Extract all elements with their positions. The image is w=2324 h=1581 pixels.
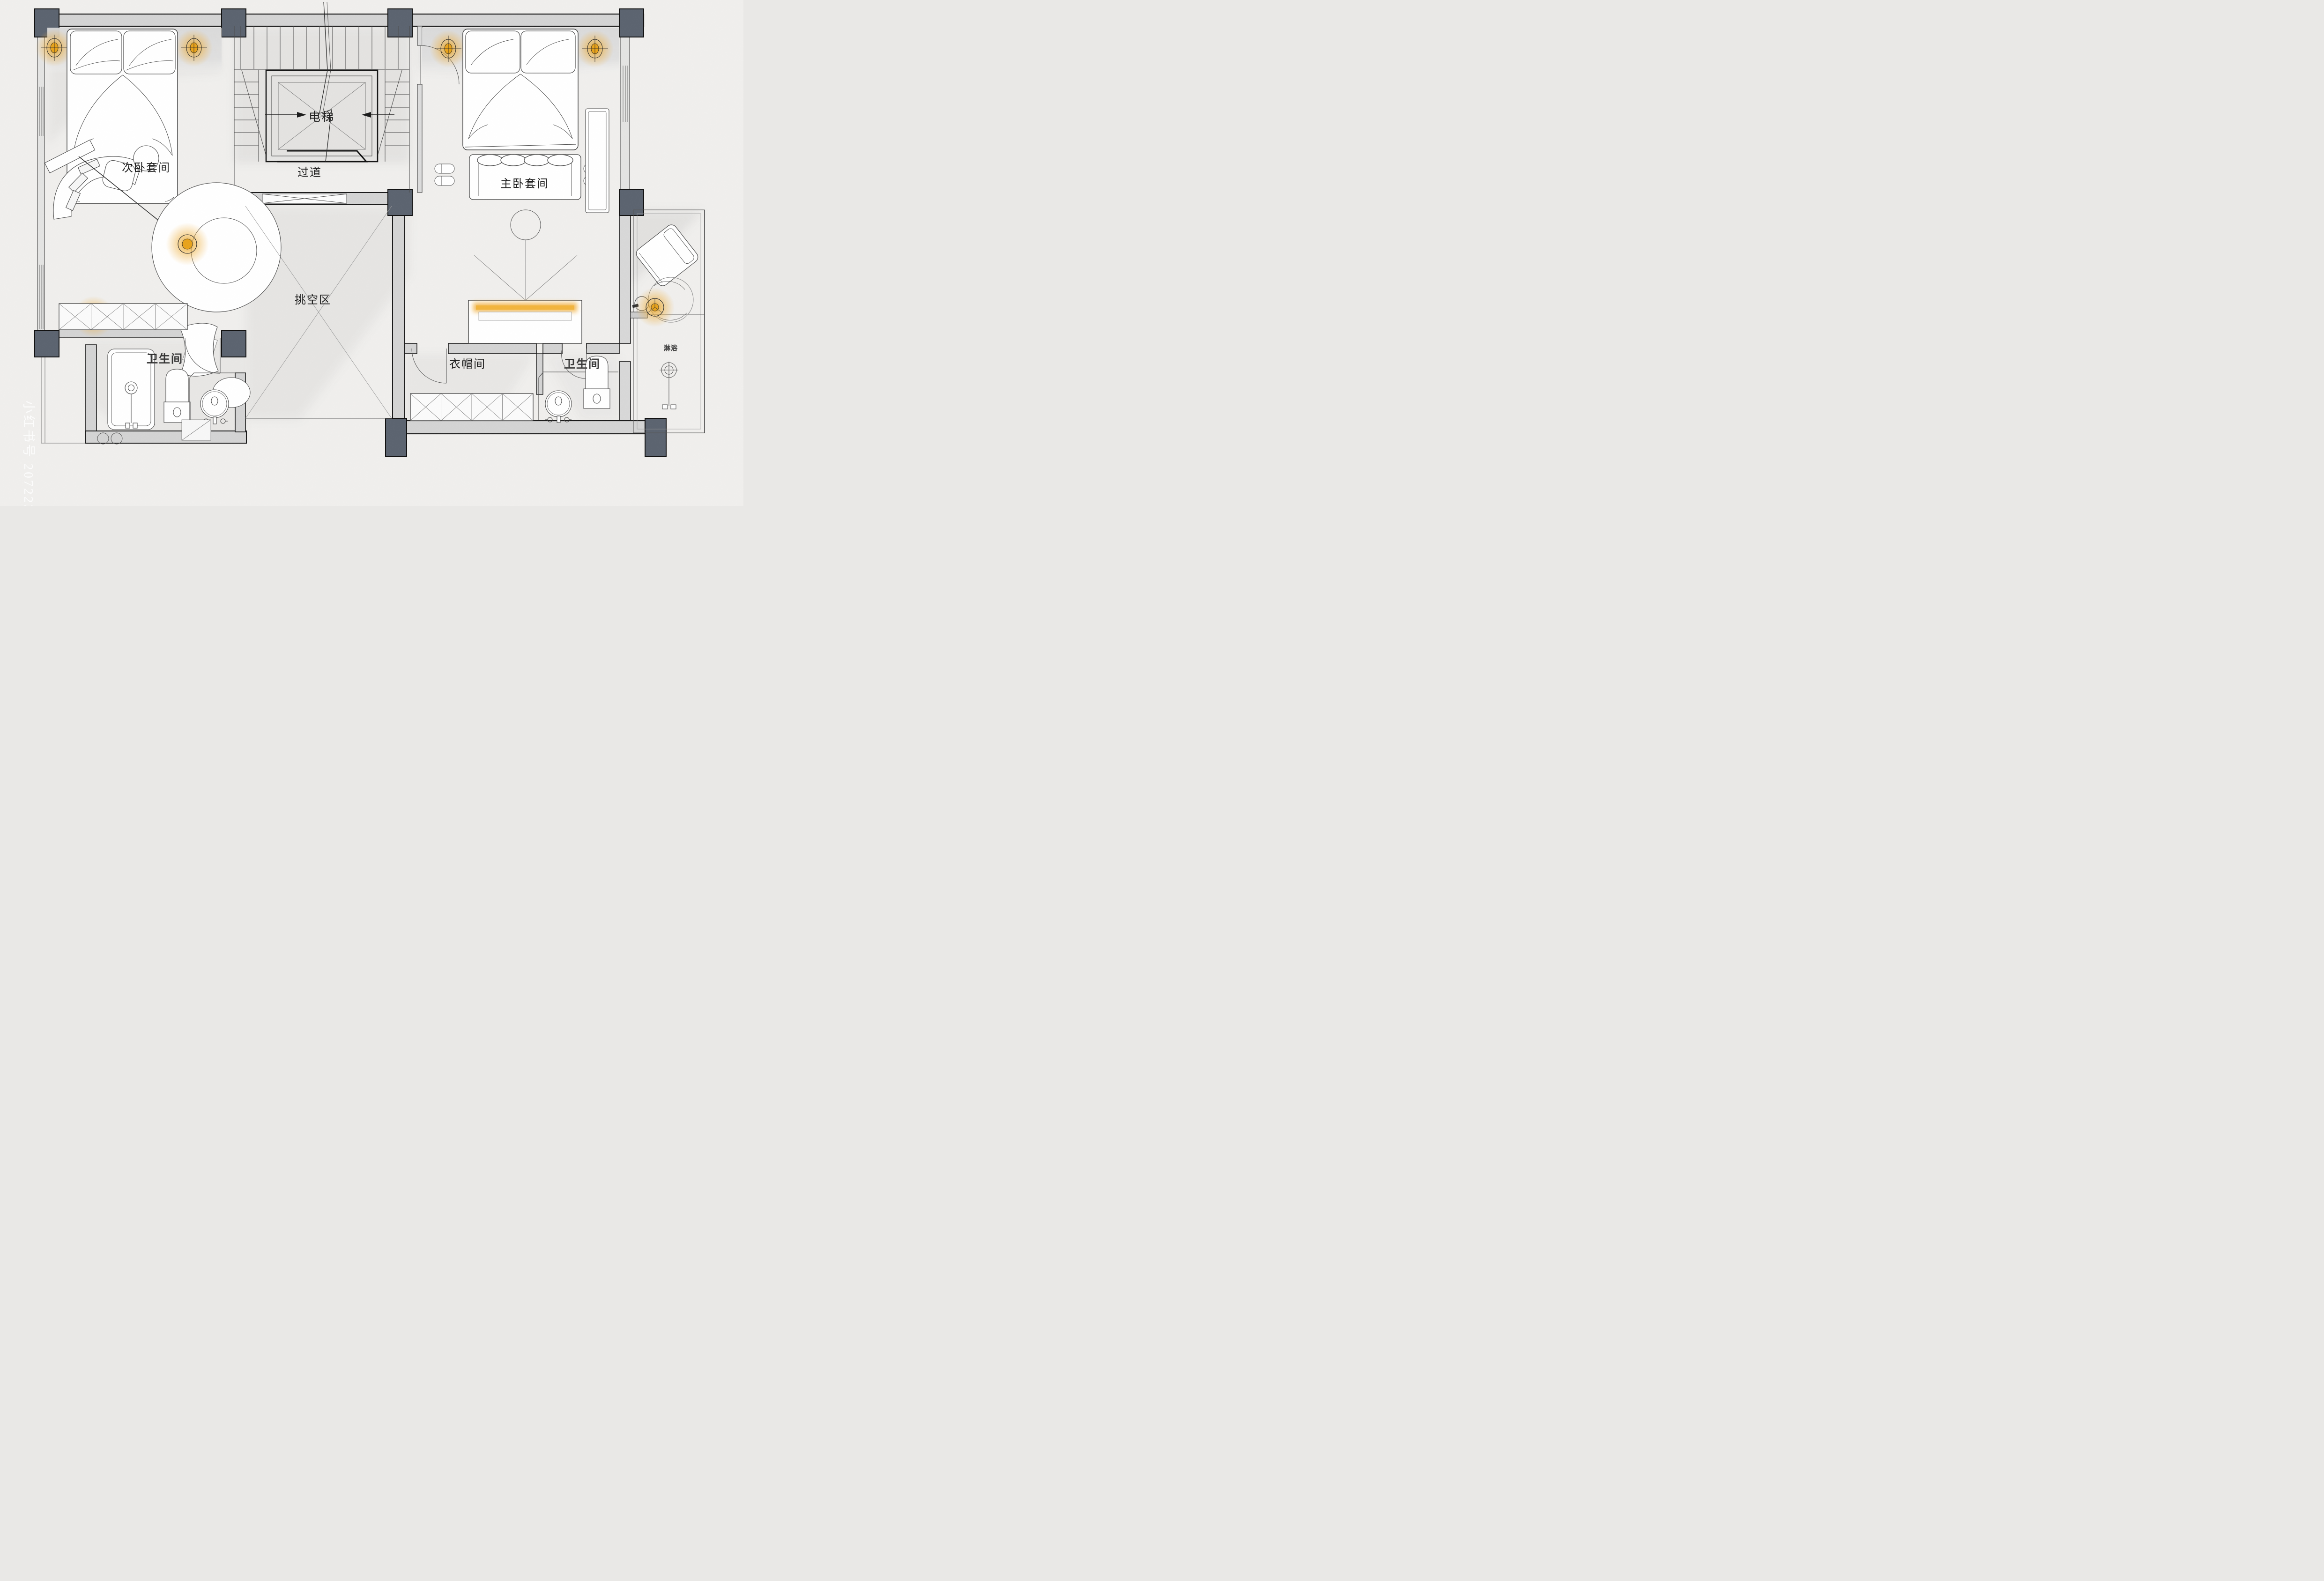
- led-strip: [476, 305, 574, 310]
- column: [388, 189, 412, 215]
- pillow: [466, 31, 520, 73]
- column: [222, 9, 246, 37]
- bedside-lamp: [576, 30, 614, 67]
- wall-bath-left-west: [85, 345, 97, 435]
- bathroom-left-label: 卫生间: [147, 353, 183, 365]
- wall-bottom-right: [396, 421, 645, 434]
- master-suite-label: 主卧套间: [500, 178, 549, 190]
- column: [222, 331, 246, 357]
- wall-under-wardrobe: [59, 330, 187, 337]
- wall-master-cloak-a: [405, 343, 417, 354]
- column: [386, 418, 407, 457]
- column: [645, 418, 666, 457]
- wardrobe-secondary: [59, 304, 187, 330]
- bathroom-right-label: 卫生间: [564, 358, 601, 371]
- wall-corridor-right-b: [417, 84, 422, 193]
- wall-master-cloak-c: [543, 343, 562, 354]
- secondary-suite-label: 次卧套间: [122, 162, 171, 174]
- pillow: [70, 31, 122, 74]
- wall-master-cloak-b: [448, 343, 536, 354]
- floor-lamp: [635, 288, 675, 327]
- wall-right-mid: [619, 215, 631, 343]
- column: [619, 9, 644, 37]
- void-label: 挑空区: [295, 294, 331, 306]
- bath-mat: [182, 420, 211, 440]
- lounge-seat: [180, 323, 218, 376]
- wall-left: [37, 26, 45, 332]
- floor-plan-drawing: 电梯: [0, 0, 743, 506]
- wardrobe-cloakroom: [410, 393, 533, 421]
- bench-sofa: [469, 155, 581, 200]
- cloakroom-label: 衣帽间: [449, 358, 486, 371]
- wall-master-cloak-d: [587, 343, 619, 354]
- wall-corridor-right-a: [417, 26, 422, 45]
- floor-plan-page: 电梯: [0, 0, 743, 506]
- wall-top: [35, 14, 644, 26]
- master-bed: [463, 29, 578, 150]
- wall-void-master: [393, 205, 405, 421]
- watermark: 小红书号 20722396: [22, 401, 36, 506]
- bedside-lamp: [175, 29, 213, 67]
- floor-lamp-head: [166, 223, 209, 266]
- column: [619, 189, 644, 215]
- toilet: [164, 369, 190, 423]
- wall-right-lower: [619, 362, 631, 421]
- tv-console: [468, 300, 582, 343]
- pillow: [521, 31, 575, 73]
- bedside-lamp: [430, 30, 467, 67]
- door-threshold: [262, 194, 347, 203]
- corridor-label: 过道: [297, 166, 322, 179]
- wall-right-upper: [620, 26, 630, 190]
- pillow: [124, 31, 175, 74]
- column: [388, 9, 412, 37]
- wall-bath-left-south: [85, 431, 246, 443]
- dresser: [586, 109, 609, 213]
- sink: [545, 391, 572, 423]
- shower-label: 淋浴: [664, 345, 678, 352]
- column: [35, 331, 59, 357]
